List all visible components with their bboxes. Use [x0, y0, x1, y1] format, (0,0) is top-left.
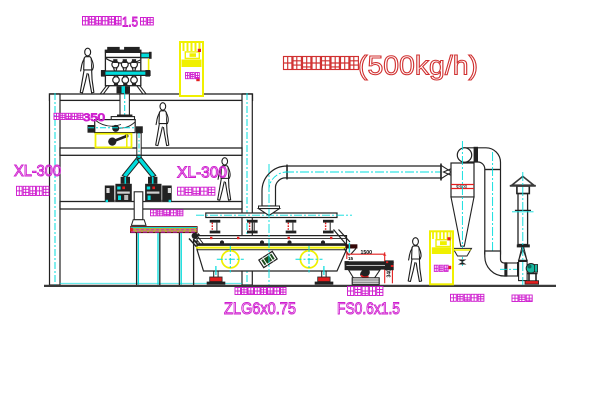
svg-text:350: 350	[83, 112, 105, 124]
svg-text:ZLG6x0.75: ZLG6x0.75	[224, 299, 296, 318]
svg-text:XL-300: XL-300	[177, 165, 227, 182]
svg-text:XL-300: XL-300	[14, 163, 61, 180]
svg-text:Φ600: Φ600	[456, 184, 468, 189]
svg-text:1.5: 1.5	[122, 14, 138, 30]
svg-text:340: 340	[387, 269, 393, 278]
svg-text:15: 15	[348, 256, 354, 261]
svg-text:1500: 1500	[361, 250, 373, 256]
svg-text:(500kg/h): (500kg/h)	[358, 51, 478, 81]
svg-text:FS0.6x1.5: FS0.6x1.5	[337, 299, 400, 318]
